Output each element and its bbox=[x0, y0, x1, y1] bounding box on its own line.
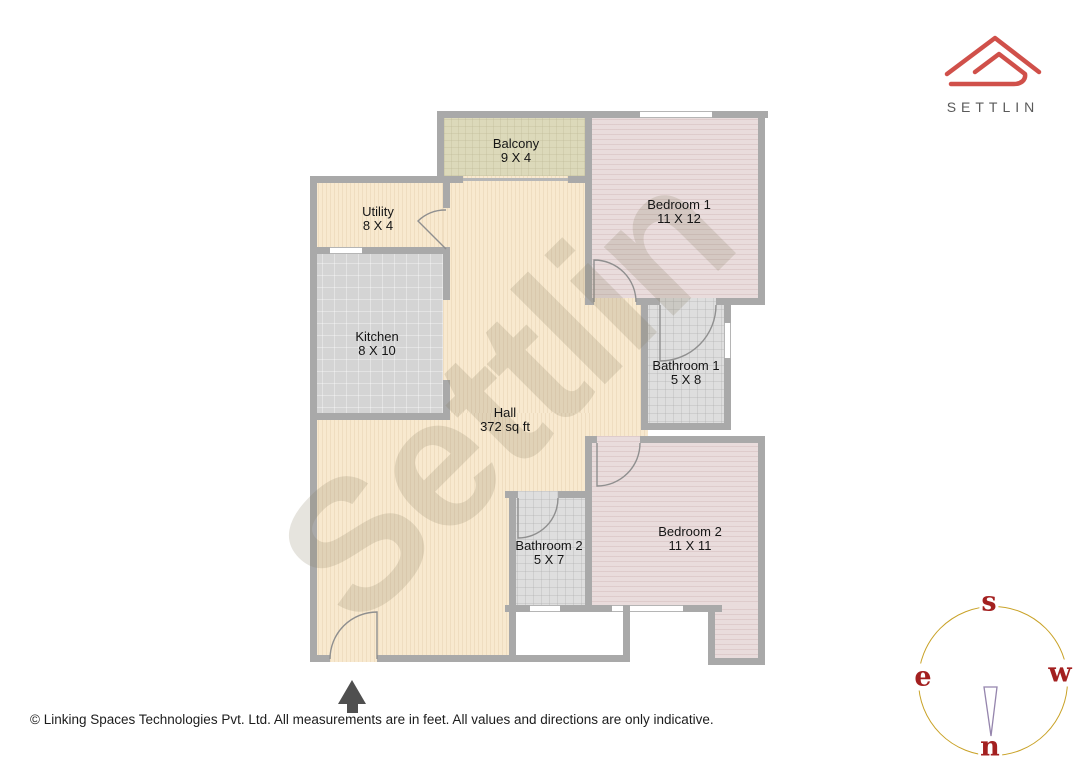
room-dims: 8 X 10 bbox=[355, 344, 398, 358]
room-name: Bathroom 2 bbox=[515, 539, 582, 553]
room-dims: 5 X 8 bbox=[652, 373, 719, 387]
room-label-balcony: Balcony 9 X 4 bbox=[493, 137, 539, 165]
wall-segment bbox=[310, 247, 330, 254]
settlin-logo-icon bbox=[941, 28, 1045, 92]
brand-block: SETTLIN bbox=[928, 28, 1058, 115]
wall-segment bbox=[585, 298, 594, 305]
entrance-arrow-icon bbox=[333, 676, 373, 716]
wall-segment bbox=[437, 176, 463, 183]
sliding-door-line bbox=[463, 178, 568, 181]
wall-segment bbox=[683, 605, 722, 612]
compass-west-label: w bbox=[1046, 660, 1073, 687]
wall-segment bbox=[708, 658, 765, 665]
compass-needle-icon bbox=[976, 684, 1006, 744]
wall-segment bbox=[443, 176, 450, 208]
wall-segment bbox=[758, 111, 765, 305]
wall-segment bbox=[585, 436, 597, 443]
duct-shaft bbox=[516, 612, 623, 655]
brand-name: SETTLIN bbox=[928, 99, 1058, 115]
room-dims: 11 X 12 bbox=[647, 212, 711, 226]
room-name: Utility bbox=[362, 205, 394, 219]
room-bedroom2-extension bbox=[708, 605, 765, 665]
wall-segment bbox=[568, 176, 592, 183]
wall-segment bbox=[640, 436, 765, 443]
room-hall bbox=[443, 176, 592, 420]
room-label-kitchen: Kitchen 8 X 10 bbox=[355, 330, 398, 358]
window bbox=[330, 247, 362, 254]
room-name: Balcony bbox=[493, 137, 539, 151]
wall-segment bbox=[558, 491, 592, 498]
room-dims: 8 X 4 bbox=[362, 219, 394, 233]
wall-segment bbox=[310, 655, 330, 662]
room-label-bedroom2: Bedroom 2 11 X 11 bbox=[658, 525, 722, 553]
floor-plan: Settlin Balcony 9 X 4 Bedroom 1 11 X 12 … bbox=[0, 0, 1080, 764]
footer-text: © Linking Spaces Technologies Pvt. Ltd. … bbox=[30, 712, 714, 727]
wall-segment bbox=[505, 605, 530, 612]
wall-segment bbox=[641, 298, 648, 430]
room-dims: 372 sq ft bbox=[480, 420, 530, 434]
wall-segment bbox=[724, 358, 731, 430]
room-label-bathroom2: Bathroom 2 5 X 7 bbox=[515, 539, 582, 567]
wall-segment bbox=[585, 443, 592, 612]
window bbox=[640, 111, 712, 118]
wall-segment bbox=[310, 176, 450, 183]
room-dims: 11 X 11 bbox=[658, 539, 722, 553]
wall-segment bbox=[377, 655, 630, 662]
compass-east-label: e bbox=[912, 664, 933, 691]
window bbox=[724, 323, 731, 358]
room-label-utility: Utility 8 X 4 bbox=[362, 205, 394, 233]
window bbox=[530, 605, 560, 612]
room-dims: 9 X 4 bbox=[493, 151, 539, 165]
wall-segment bbox=[585, 111, 592, 305]
room-hall bbox=[310, 413, 516, 662]
wall-segment bbox=[641, 423, 731, 430]
wall-segment bbox=[443, 247, 450, 300]
room-dims: 5 X 7 bbox=[515, 553, 582, 567]
wall-segment bbox=[724, 305, 731, 323]
wall-segment bbox=[437, 111, 444, 183]
wall-segment bbox=[310, 413, 450, 420]
room-name: Bedroom 1 bbox=[647, 198, 711, 212]
wall-segment bbox=[636, 298, 660, 305]
room-name: Kitchen bbox=[355, 330, 398, 344]
wall-segment bbox=[623, 605, 630, 662]
room-label-bedroom1: Bedroom 1 11 X 12 bbox=[647, 198, 711, 226]
wall-segment bbox=[362, 247, 450, 254]
room-label-hall: Hall 372 sq ft bbox=[480, 406, 530, 434]
wall-segment bbox=[716, 298, 765, 305]
wall-segment bbox=[437, 111, 640, 118]
wall-segment bbox=[560, 605, 612, 612]
room-name: Bedroom 2 bbox=[658, 525, 722, 539]
room-name: Bathroom 1 bbox=[652, 359, 719, 373]
room-name: Hall bbox=[480, 406, 530, 420]
wall-segment bbox=[758, 436, 765, 665]
room-label-bathroom1: Bathroom 1 5 X 8 bbox=[652, 359, 719, 387]
compass-south-label: s bbox=[979, 589, 998, 616]
wall-segment bbox=[509, 491, 516, 662]
